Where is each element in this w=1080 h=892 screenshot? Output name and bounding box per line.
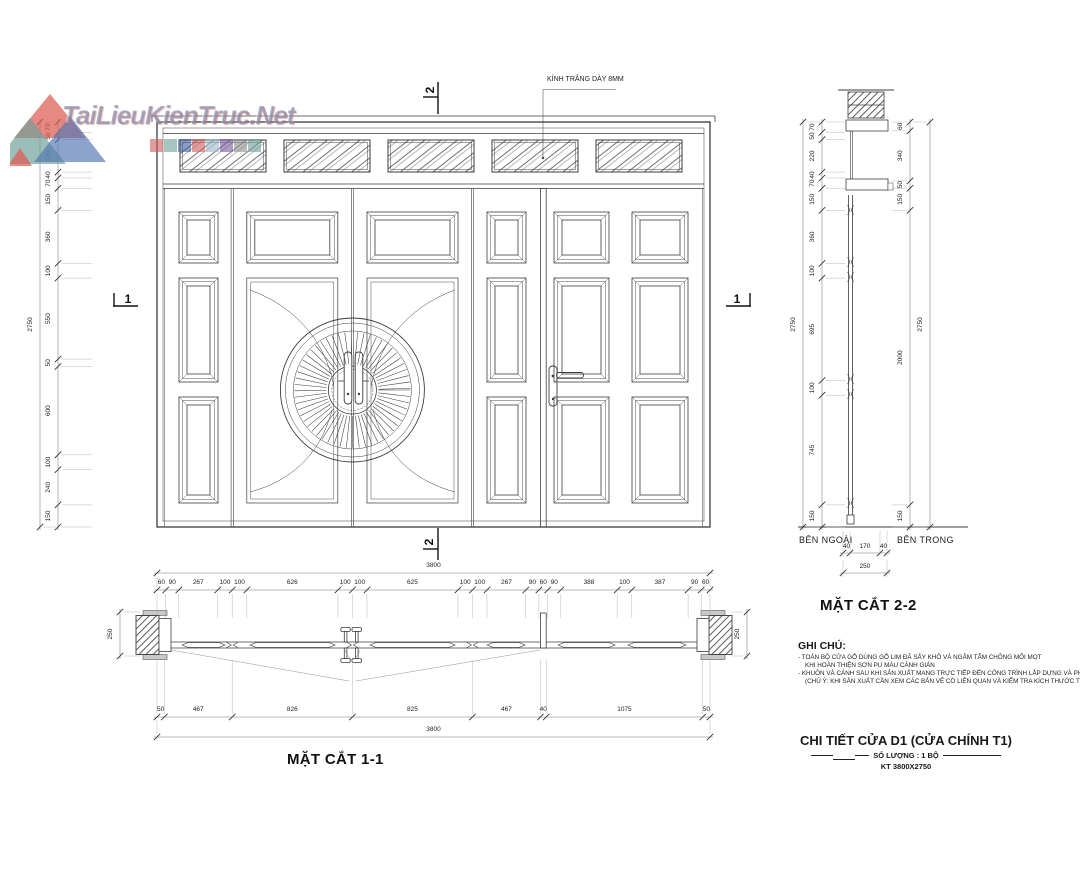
svg-text:150: 150 [809, 194, 816, 205]
svg-text:100: 100 [474, 579, 485, 586]
watermark-squares [150, 139, 262, 157]
svg-text:40: 40 [540, 706, 548, 713]
notes-line: KHI HOÀN THIỆN SƠN PU MÀU CÁNH GIÁN [798, 662, 1080, 670]
svg-text:50: 50 [897, 181, 904, 189]
svg-text:50: 50 [45, 359, 52, 367]
svg-text:100: 100 [220, 579, 231, 586]
svg-text:100: 100 [354, 579, 365, 586]
notes-heading: GHI CHÚ: [798, 640, 1080, 652]
svg-text:100: 100 [619, 579, 630, 586]
svg-text:2750: 2750 [27, 317, 34, 332]
svg-text:40: 40 [45, 171, 52, 179]
svg-text:150: 150 [809, 510, 816, 521]
notes-line: - TOÀN BỘ CỬA GỖ DÙNG GỖ LIM ĐÃ SẤY KHÔ … [798, 654, 1080, 662]
rule [811, 755, 833, 756]
notes-line: (CHÚ Ý: KHI SẢN XUẤT CẦN XEM CÁC BẢN VẼ … [798, 678, 1080, 686]
svg-text:250: 250 [734, 628, 741, 639]
svg-text:40: 40 [880, 543, 888, 550]
svg-text:3800: 3800 [426, 562, 441, 569]
svg-text:745: 745 [809, 444, 816, 455]
svg-text:150: 150 [45, 194, 52, 205]
svg-text:150: 150 [897, 510, 904, 521]
svg-text:695: 695 [809, 323, 816, 334]
drawing-title: CHI TIẾT CỬA D1 (CỬA CHÍNH T1) [788, 733, 1024, 748]
outside-label: BÊN NGOÀI [799, 535, 853, 545]
notes: GHI CHÚ: - TOÀN BỘ CỬA GỖ DÙNG GỖ LIM ĐÃ… [798, 640, 1080, 686]
svg-text:100: 100 [45, 456, 52, 467]
svg-text:90: 90 [169, 579, 177, 586]
dim-section2-left: 70502204070150360100695100745150 [809, 119, 845, 530]
section-1-1-view [136, 611, 732, 682]
svg-text:100: 100 [809, 265, 816, 276]
dim-plan-bottom: 5046782682546740107550 [154, 660, 713, 720]
svg-text:100: 100 [45, 265, 52, 276]
sunburst-ornament [250, 290, 455, 492]
svg-text:2750: 2750 [917, 317, 924, 332]
svg-text:467: 467 [501, 706, 512, 713]
svg-text:100: 100 [460, 579, 471, 586]
quantity-row: SỐ LƯỢNG : 1 BỘ [788, 751, 1024, 760]
svg-text:2000: 2000 [897, 350, 904, 365]
svg-text:360: 360 [809, 231, 816, 242]
section-marker-1-left: 1 [125, 292, 132, 306]
section-2-2-title: MẶT CẮT 2-2 [820, 597, 917, 614]
svg-text:90: 90 [551, 579, 559, 586]
svg-text:550: 550 [45, 313, 52, 324]
svg-text:825: 825 [407, 706, 418, 713]
title-block: CHI TIẾT CỬA D1 (CỬA CHÍNH T1) SỐ LƯỢNG … [788, 733, 1024, 771]
svg-text:40: 40 [809, 171, 816, 179]
svg-text:388: 388 [584, 579, 595, 586]
svg-text:467: 467 [193, 706, 204, 713]
drawing-sheet: { "watermark": { "brand": "TaiLieuKienTr… [0, 0, 1080, 892]
svg-text:626: 626 [287, 579, 298, 586]
watermark-square [234, 139, 247, 152]
watermark-square [178, 139, 191, 152]
watermark-square [192, 139, 205, 152]
rule [943, 755, 1001, 756]
svg-text:100: 100 [809, 382, 816, 393]
svg-text:50: 50 [157, 706, 165, 713]
dim-section2-right: 60340501502000150 [892, 119, 913, 530]
svg-text:70: 70 [809, 123, 816, 131]
dim-plan-top: 6090267100100626100100625100100267906090… [154, 579, 713, 618]
section-marker-2-top: 2 [423, 86, 437, 93]
svg-text:600: 600 [45, 405, 52, 416]
svg-text:90: 90 [691, 579, 699, 586]
svg-text:60: 60 [158, 579, 166, 586]
dim-elevation-left: 7050220407015036010055050600100240150 [45, 119, 92, 530]
svg-text:625: 625 [407, 579, 418, 586]
svg-text:2750: 2750 [790, 317, 797, 332]
svg-text:387: 387 [655, 579, 666, 586]
dim-plan-wall-right: 250 [731, 609, 750, 659]
door-panels [179, 212, 688, 503]
svg-text:100: 100 [340, 579, 351, 586]
watermark-square [206, 139, 219, 152]
svg-text:50: 50 [809, 132, 816, 140]
rule [855, 755, 869, 756]
leaf-joints [164, 189, 702, 528]
dim-plan-wall-left: 250 [107, 609, 140, 659]
section-1-1-title: MẶT CẮT 1-1 [287, 751, 384, 768]
svg-text:170: 170 [860, 543, 871, 550]
watermark-text: TaiLieuKienTruc.Net [62, 100, 294, 131]
svg-text:70: 70 [45, 179, 52, 187]
section-marker-1-right: 1 [734, 292, 741, 306]
section-marker-2-bottom: 2 [422, 538, 436, 545]
svg-text:826: 826 [287, 706, 298, 713]
svg-text:50: 50 [703, 706, 711, 713]
svg-text:100: 100 [234, 579, 245, 586]
dim-section2-bottom-total: 250 [840, 560, 890, 577]
svg-text:250: 250 [860, 563, 871, 570]
svg-text:1075: 1075 [617, 706, 632, 713]
inside-label: BÊN TRONG [897, 535, 954, 545]
dim-section2-right-total: 2750 [913, 119, 933, 530]
dim-plan-bottom-total: 3800 [154, 720, 713, 740]
watermark-square [248, 139, 261, 152]
size-label: KT 3800X2750 [788, 762, 1024, 771]
svg-text:60: 60 [897, 122, 904, 130]
watermark-square [164, 139, 177, 152]
svg-text:340: 340 [897, 150, 904, 161]
svg-text:60: 60 [702, 579, 710, 586]
svg-text:250: 250 [107, 628, 114, 639]
sunburst-rays [294, 332, 410, 448]
svg-text:240: 240 [45, 481, 52, 492]
svg-text:150: 150 [897, 194, 904, 205]
notes-line: - KHUÔN VÀ CÁNH SAU KHI SẢN XUẤT MANG TR… [798, 670, 1080, 678]
svg-text:267: 267 [501, 579, 512, 586]
quantity-label: SỐ LƯỢNG : 1 BỘ [869, 751, 943, 760]
svg-text:3800: 3800 [426, 726, 441, 733]
svg-text:60: 60 [540, 579, 548, 586]
section-2-2-view [798, 90, 968, 527]
watermark-square [220, 139, 233, 152]
svg-text:360: 360 [45, 231, 52, 242]
triangle-ornament [833, 752, 855, 759]
svg-text:220: 220 [809, 150, 816, 161]
svg-text:150: 150 [45, 510, 52, 521]
glass-note-label: KÍNH TRẮNG DÀY 8MM [547, 76, 624, 83]
svg-text:267: 267 [193, 579, 204, 586]
svg-text:90: 90 [529, 579, 537, 586]
watermark-square [150, 139, 163, 152]
svg-text:70: 70 [809, 179, 816, 187]
